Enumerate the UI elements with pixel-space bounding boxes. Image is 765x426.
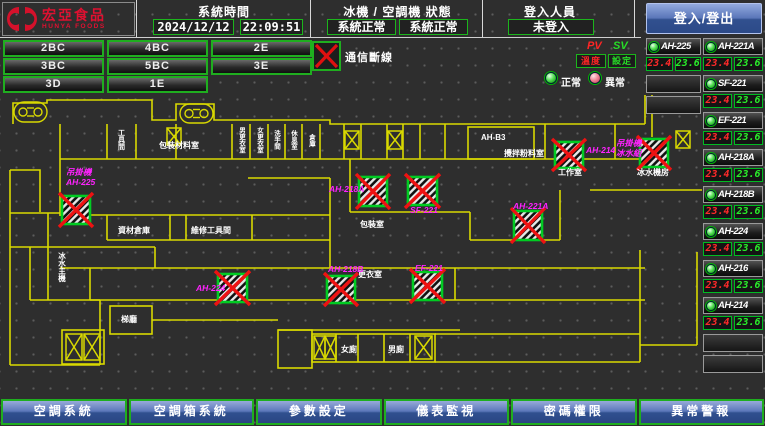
- status-led: [706, 153, 716, 163]
- equipment-button-ah-221a[interactable]: AH-221A: [703, 38, 763, 55]
- pv-value-display: 23.4: [646, 57, 673, 71]
- menu-button-異常警報[interactable]: 異常警報: [639, 399, 765, 425]
- device-label: AH-218A: [328, 184, 364, 194]
- menu-button-空調系統[interactable]: 空調系統: [1, 399, 127, 425]
- room-label: 資材倉庫: [118, 225, 150, 235]
- ahu-fault-icon[interactable]: [511, 208, 545, 243]
- column-symbols: [66, 128, 690, 360]
- equipment-column-right: AH-221A23.423.6SF-22123.423.6EF-22123.42…: [703, 38, 763, 376]
- equipment-values: 23.423.6: [703, 168, 763, 182]
- device-label: AH-214: [585, 145, 616, 155]
- room-label: 休息室: [290, 129, 299, 151]
- device-label: AH-224: [195, 283, 226, 293]
- equipment-values: 23.423.6: [703, 94, 763, 108]
- pv-value-display: 23.4: [703, 205, 732, 219]
- equipment-values: 23.423.6: [703, 131, 763, 145]
- status-led: [706, 42, 716, 52]
- ahu-fault-icon[interactable]: [410, 269, 445, 303]
- device-label: AH-221A: [512, 201, 548, 211]
- room-label: 工作室: [558, 167, 582, 177]
- pv-value-display: 23.4: [703, 94, 732, 108]
- equipment-values: 23.423.6: [703, 242, 763, 256]
- menu-button-參數設定[interactable]: 參數設定: [256, 399, 382, 425]
- column-x-symbol: [84, 334, 100, 360]
- sv-value-display: 23.6: [734, 94, 763, 108]
- room-label: 梯廳: [121, 314, 137, 324]
- column-x-symbol: [676, 131, 690, 148]
- status-led: [706, 190, 716, 200]
- equipment-button-ef-221[interactable]: EF-221: [703, 112, 763, 129]
- sv-value-display: 23.6: [734, 316, 763, 330]
- pv-value-display: 23.4: [703, 242, 732, 256]
- device-label: 吊掛機: [66, 167, 93, 177]
- pv-value-display: 23.4: [703, 168, 732, 182]
- equipment-name: EF-221: [718, 115, 746, 126]
- device-label: AH-225: [65, 177, 96, 187]
- equipment-name: AH-218A: [718, 152, 754, 163]
- room-label: 冰水主機: [57, 251, 66, 283]
- sv-value-display: 23.6: [734, 279, 763, 293]
- room-label: AH-B3: [481, 133, 506, 142]
- stair-symbols: [14, 102, 213, 123]
- status-led: [649, 42, 659, 52]
- room-label: 維修工具間: [191, 225, 231, 235]
- room-label: 男廁: [388, 344, 404, 354]
- device-label: AH-218B: [327, 264, 363, 274]
- equipment-name: AH-225: [661, 41, 691, 52]
- room-label: 包裝室: [359, 219, 384, 229]
- status-led: [706, 79, 716, 89]
- device-label: 吊掛機: [616, 138, 643, 148]
- column-x-symbol: [388, 131, 402, 149]
- empty-equipment-slot: [703, 355, 763, 373]
- menu-button-儀表監視[interactable]: 儀表監視: [384, 399, 510, 425]
- status-led: [706, 264, 716, 274]
- equipment-button-ah-218b[interactable]: AH-218B: [703, 186, 763, 203]
- room-label: 女更衣室: [256, 126, 264, 155]
- room-label: 冰水機房: [637, 167, 669, 177]
- equipment-values: 23.423.6: [703, 316, 763, 330]
- room-label: 工具間: [118, 129, 127, 151]
- equipment-button-ah-214[interactable]: AH-214: [703, 297, 763, 314]
- column-x-symbol: [325, 336, 336, 359]
- status-led: [706, 227, 716, 237]
- pv-value-display: 23.4: [703, 279, 732, 293]
- hvac-scada-screen: { "header": { "logo_title": "宏亞食品", "log…: [0, 0, 765, 426]
- sv-value-display: 23.6: [734, 205, 763, 219]
- device-label: 冰水組: [616, 148, 643, 158]
- equipment-name: AH-214: [718, 300, 748, 311]
- room-label: 包裝材料室: [158, 140, 199, 150]
- ahu-fault-icon[interactable]: [59, 193, 93, 227]
- room-label: 攪拌粉料室: [504, 148, 544, 158]
- equipment-button-sf-221[interactable]: SF-221: [703, 75, 763, 92]
- equipment-button-ah-218a[interactable]: AH-218A: [703, 149, 763, 166]
- device-label: EF-221: [415, 263, 443, 273]
- equipment-name: AH-221A: [718, 41, 754, 52]
- pv-value-display: 23.4: [703, 57, 732, 71]
- status-led: [706, 116, 716, 126]
- equipment-name: AH-224: [718, 226, 748, 237]
- sv-value-display: 23.6: [734, 242, 763, 256]
- equipment-name: SF-221: [718, 78, 746, 89]
- empty-equipment-slot: [646, 75, 701, 93]
- equipment-button-ah-224[interactable]: AH-224: [703, 223, 763, 240]
- menu-button-密碼權限[interactable]: 密碼權限: [511, 399, 637, 425]
- empty-equipment-slot: [703, 334, 763, 352]
- equipment-name: AH-216: [718, 263, 748, 274]
- column-x-symbol: [314, 336, 325, 359]
- menu-button-空調箱系統[interactable]: 空調箱系統: [129, 399, 255, 425]
- room-label: 女廁: [341, 344, 357, 354]
- equipment-values: 23.423.6: [703, 205, 763, 219]
- column-x-symbol: [415, 336, 432, 359]
- ahu-fault-icon[interactable]: [324, 273, 358, 306]
- status-led: [706, 301, 716, 311]
- column-x-symbol: [345, 131, 359, 149]
- floor-plan-map: 工具間包裝材料室男更衣室女更衣室洗手間休息室倉庫AH-B3攪拌粉料室工作室冰水機…: [0, 0, 702, 398]
- device-label: SF-221: [410, 205, 438, 215]
- equipment-values: 23.423.6: [703, 279, 763, 293]
- empty-equipment-slot: [646, 96, 701, 114]
- stair-symbol: [180, 104, 213, 123]
- sv-value-display: 23.6: [734, 131, 763, 145]
- room-label: 倉庫: [308, 133, 317, 149]
- ahu-fault-icon[interactable]: [405, 174, 440, 208]
- equipment-values: 23.423.6: [646, 57, 701, 71]
- room-label: 洗手間: [273, 129, 281, 151]
- sv-value-display: 23.6: [734, 57, 763, 71]
- ahu-fault-icon[interactable]: [552, 139, 586, 171]
- room-label: 男更衣室: [238, 127, 247, 155]
- equipment-button-ah-216[interactable]: AH-216: [703, 260, 763, 277]
- stair-symbol: [14, 102, 47, 122]
- equipment-column-left: AH-22523.423.6: [646, 38, 701, 117]
- sv-value-display: 23.6: [734, 168, 763, 182]
- equipment-name: AH-218B: [718, 189, 754, 200]
- equipment-button-ah-225[interactable]: AH-225: [646, 38, 701, 55]
- column-x-symbol: [66, 334, 82, 360]
- equipment-values: 23.423.6: [703, 57, 763, 71]
- bottom-menu-bar: 空調系統空調箱系統參數設定儀表監視密碼權限異常警報: [0, 398, 765, 426]
- sv-value-display: 23.6: [675, 57, 702, 71]
- ahu-fault-icon[interactable]: [637, 136, 671, 170]
- pv-value-display: 23.4: [703, 131, 732, 145]
- pv-value-display: 23.4: [703, 316, 732, 330]
